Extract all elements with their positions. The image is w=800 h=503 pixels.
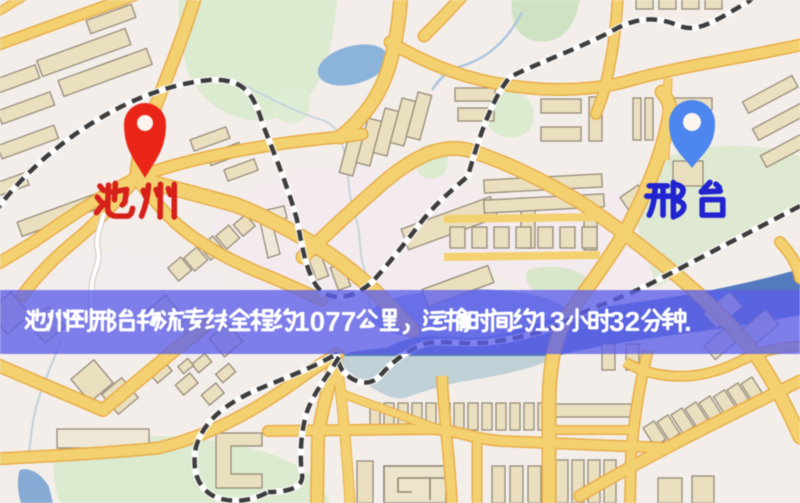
svg-text:32: 32 [609, 306, 640, 337]
svg-text:1077: 1077 [294, 306, 356, 337]
svg-text:13: 13 [534, 306, 565, 337]
svg-text:.: . [684, 306, 692, 337]
